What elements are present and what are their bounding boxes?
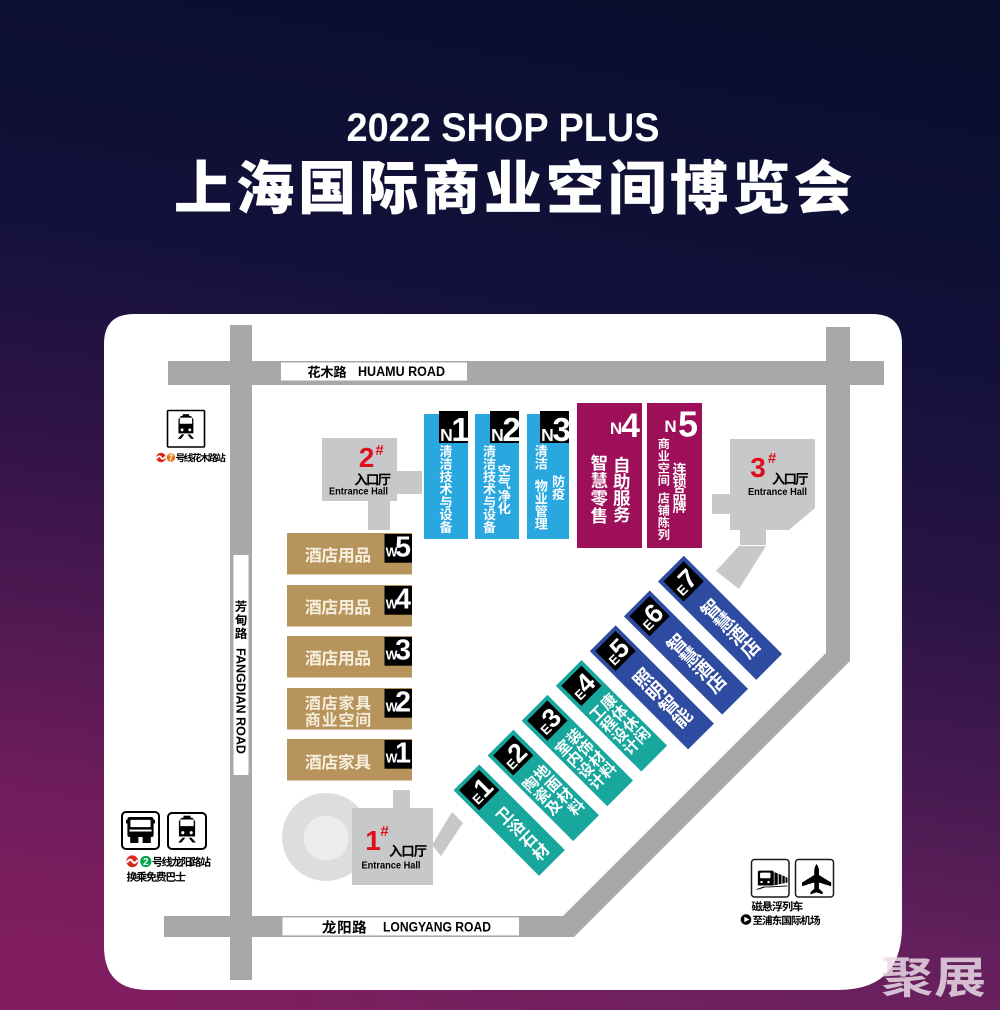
svg-text:1: 1 (395, 737, 411, 769)
svg-text:#: # (768, 450, 777, 467)
svg-text:4: 4 (395, 583, 411, 615)
svg-text:HUAMU ROAD: HUAMU ROAD (358, 364, 445, 379)
svg-text:5: 5 (395, 531, 411, 563)
svg-text:#: # (380, 823, 389, 840)
svg-text:2022 SHOP PLUS: 2022 SHOP PLUS (347, 106, 660, 150)
svg-text:3: 3 (552, 411, 570, 448)
svg-text:1: 1 (451, 411, 469, 448)
svg-text:FANGDIAN ROAD: FANGDIAN ROAD (234, 648, 249, 754)
svg-text:Entrance Hall: Entrance Hall (329, 485, 388, 497)
svg-text:2: 2 (395, 686, 411, 718)
svg-text:5: 5 (678, 404, 698, 445)
svg-text:2: 2 (502, 411, 520, 448)
svg-text:2: 2 (143, 857, 149, 868)
svg-text:3: 3 (750, 452, 766, 483)
svg-text:7: 7 (169, 453, 174, 462)
svg-text:1: 1 (365, 825, 381, 856)
svg-text:Entrance Hall: Entrance Hall (362, 859, 421, 871)
svg-text:N: N (664, 417, 676, 436)
svg-text:Entrance Hall: Entrance Hall (748, 486, 807, 498)
svg-text:4: 4 (621, 407, 640, 445)
svg-text:2: 2 (359, 442, 375, 473)
svg-text:3: 3 (395, 634, 411, 666)
svg-text:#: # (375, 442, 384, 459)
svg-text:LONGYANG ROAD: LONGYANG ROAD (383, 920, 491, 935)
